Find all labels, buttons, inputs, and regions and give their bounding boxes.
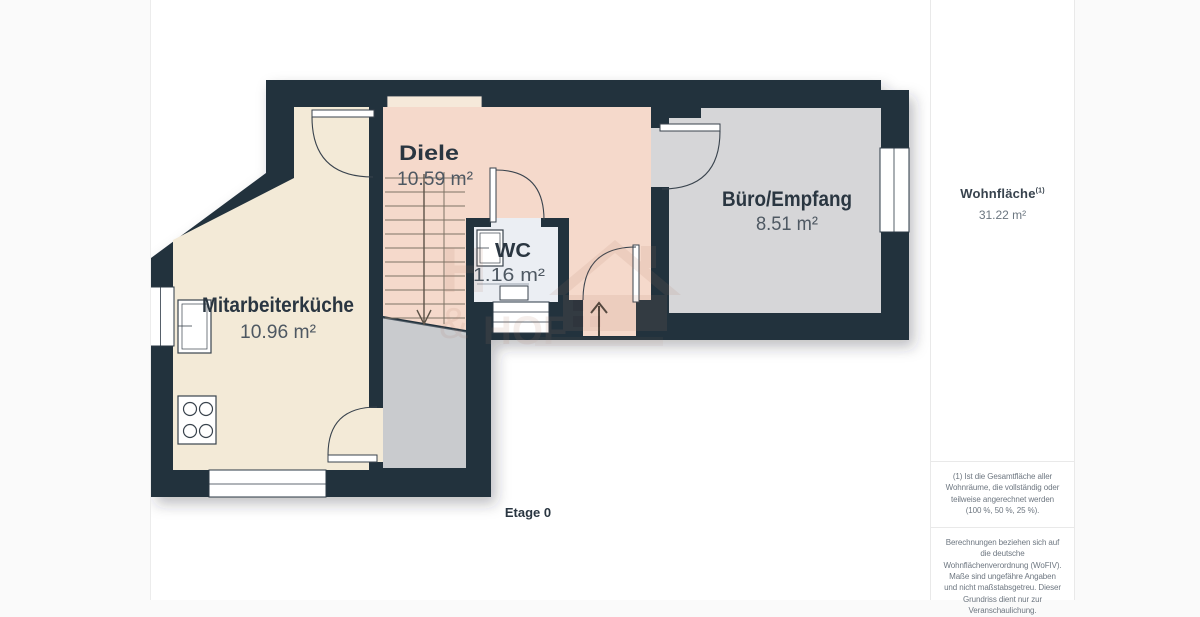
floor-plan-page: { "floorplan": { "level_label": "Etage 0… (0, 0, 1200, 600)
room-label-diele: Diele (399, 142, 459, 165)
door-leaf (633, 245, 639, 302)
sidebar-divider (931, 461, 1074, 462)
room-label-buero: Büro/Empfang (722, 188, 852, 211)
door-leaf (490, 168, 496, 222)
total-area-block: Wohnfläche(1) 31.22 m² (931, 186, 1074, 222)
door-leaf (312, 110, 374, 117)
room-area-kitchen: 10.96 m² (240, 322, 316, 343)
info-sidebar: Wohnfläche(1) 31.22 m² (1) Ist die Gesam… (930, 0, 1075, 600)
kitchen-stove (178, 396, 216, 444)
door-leaf (660, 124, 720, 131)
footnote-marker: (1) (1036, 188, 1045, 195)
watermark-word: HOF (483, 309, 567, 353)
room-area-wc: 1.16 m² (473, 265, 545, 285)
room-label-kitchen: Mitarbeiterküche (202, 294, 354, 317)
total-area-label: Wohnfläche(1) (931, 186, 1074, 201)
footnote-1: (1) Ist die Gesamtfläche aller Wohnräume… (931, 471, 1074, 516)
watermark-ampersand: & (439, 299, 468, 348)
room-area-buero: 8.51 m² (756, 214, 818, 235)
level-label: Etage 0 (505, 505, 551, 520)
room-area-diele: 10.59 m² (397, 169, 473, 190)
floor-plan-svg: H & HOF Diele 10.59 m² Mitarbeiterküche … (151, 0, 931, 600)
footnote-2: Berechnungen beziehen sich auf die deuts… (931, 537, 1074, 617)
buero-door-opening (651, 128, 669, 187)
kitchen-left-window (151, 287, 174, 346)
total-area-label-text: Wohnfläche (960, 186, 1035, 201)
hall-top-window (387, 96, 482, 108)
room-label-wc: WC (495, 240, 531, 262)
total-area-value: 31.22 m² (931, 208, 1074, 222)
wc-door-opening (491, 218, 541, 227)
floor-plan-canvas: H & HOF Diele 10.59 m² Mitarbeiterküche … (150, 0, 931, 600)
kitchen-bottom-window (209, 470, 326, 497)
kitchen-door-opening (369, 408, 383, 462)
sidebar-divider (931, 527, 1074, 528)
buero-right-window (880, 148, 909, 232)
door-leaf (328, 455, 377, 462)
